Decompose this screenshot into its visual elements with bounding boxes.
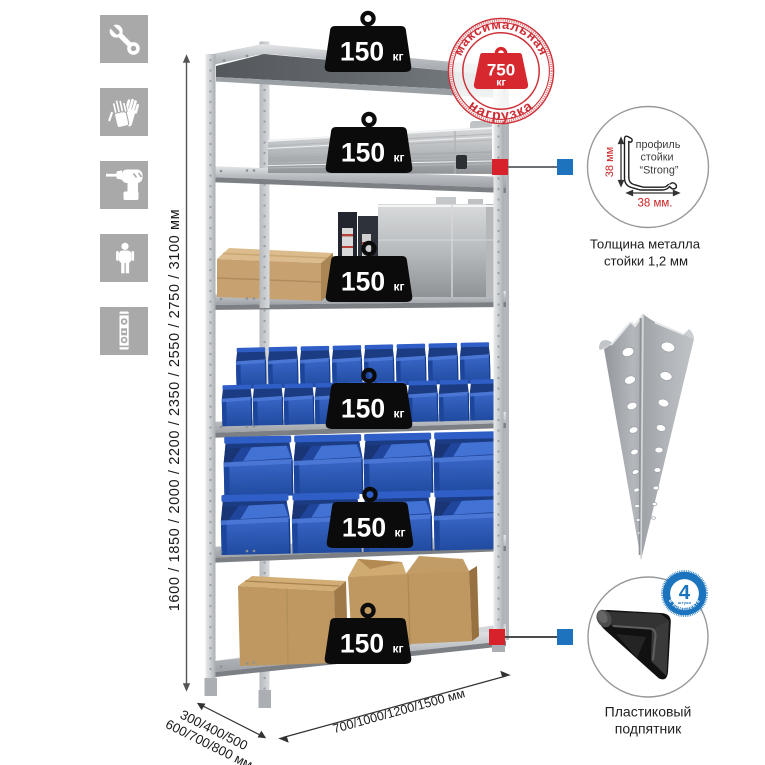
svg-text:стойки 1,2 мм: стойки 1,2 мм xyxy=(604,254,688,269)
svg-text:Толщина металла: Толщина металла xyxy=(590,237,701,252)
svg-text:подпятник: подпятник xyxy=(615,721,682,737)
svg-text:“Strong”: “Strong” xyxy=(639,165,678,177)
svg-text:штуки: штуки xyxy=(678,600,692,605)
svg-text:профиль: профиль xyxy=(636,139,681,151)
svg-text:Пластиковый: Пластиковый xyxy=(605,704,692,720)
svg-text:кг: кг xyxy=(496,77,506,89)
svg-text:1600 / 1850 / 2000 / 2200 / 23: 1600 / 1850 / 2000 / 2200 / 2350 / 2550 … xyxy=(167,209,183,612)
svg-text:38 мм: 38 мм xyxy=(604,147,616,177)
svg-text:стойки: стойки xyxy=(640,152,673,164)
svg-text:38 мм.: 38 мм. xyxy=(638,198,673,210)
